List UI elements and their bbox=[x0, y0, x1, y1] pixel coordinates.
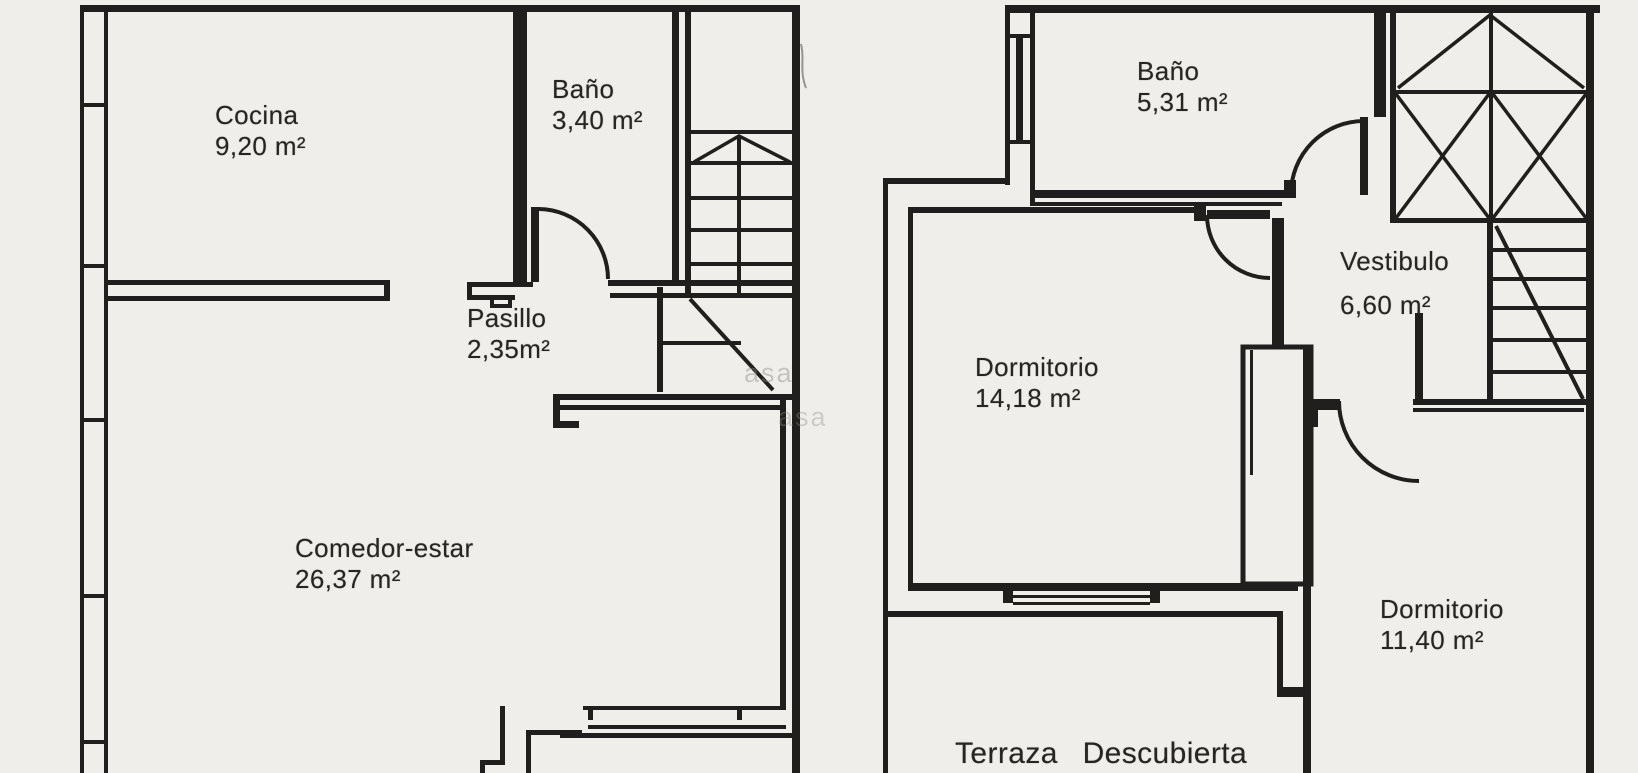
room-area: 2,35m² bbox=[467, 334, 550, 365]
upper-wardrobe-column bbox=[1243, 347, 1311, 584]
ground-passage-bottom-wall bbox=[553, 394, 800, 428]
ground-kitchen-partition bbox=[104, 280, 390, 301]
room-label-cocina: Cocina 9,20 m² bbox=[215, 100, 306, 161]
room-name: Baño bbox=[1137, 56, 1228, 87]
room-area: 3,40 m² bbox=[552, 105, 643, 136]
upper-bedroom14-window bbox=[1003, 591, 1160, 605]
room-label-dormitorio-14: Dormitorio 14,18 m² bbox=[975, 352, 1099, 413]
ground-outer-walls bbox=[80, 5, 800, 773]
room-area: 14,18 m² bbox=[975, 383, 1099, 414]
room-name: Cocina bbox=[215, 100, 306, 131]
upper-terrace-walls bbox=[885, 611, 1311, 697]
room-label-pasillo: Pasillo 2,35m² bbox=[467, 303, 550, 364]
room-area: 9,20 m² bbox=[215, 131, 306, 162]
room-area: 6,60 m² bbox=[1340, 290, 1449, 321]
room-label-terraza: Terraza Descubierta bbox=[955, 736, 1247, 771]
room-label-comedor: Comedor-estar 26,37 m² bbox=[295, 533, 474, 594]
room-name: Pasillo bbox=[467, 303, 550, 334]
watermark-fragment: asa bbox=[778, 402, 828, 433]
ground-bathroom-door bbox=[531, 207, 800, 298]
scan-artifact-squiggle bbox=[801, 44, 806, 88]
ground-left-wall-window-ticks bbox=[80, 103, 108, 744]
upper-bathroom-walls bbox=[1030, 180, 1296, 206]
upper-bedroom14-door bbox=[1194, 206, 1270, 278]
room-area: 26,37 m² bbox=[295, 564, 474, 595]
upper-dividing-wall bbox=[1303, 347, 1311, 773]
room-name: Comedor-estar bbox=[295, 533, 474, 564]
upper-bedroom11-door bbox=[1313, 313, 1423, 481]
room-label-bano-upper: Baño 5,31 m² bbox=[1137, 56, 1228, 117]
room-label-dormitorio-11: Dormitorio 11,40 m² bbox=[1380, 594, 1504, 655]
room-name: Dormitorio bbox=[1380, 594, 1504, 625]
upper-stairwell bbox=[1390, 5, 1592, 223]
room-name: Vestibulo bbox=[1340, 246, 1449, 277]
ground-floor-plan bbox=[80, 5, 806, 773]
room-name: Terraza Descubierta bbox=[955, 736, 1247, 771]
room-area: 11,40 m² bbox=[1380, 625, 1504, 656]
watermark-fragment: asa bbox=[744, 358, 794, 389]
room-name: Baño bbox=[552, 74, 643, 105]
ground-entry-steps bbox=[480, 706, 582, 773]
floor-plan-document: Cocina 9,20 m² Baño 3,40 m² Pasillo 2,35… bbox=[0, 0, 1638, 773]
ground-livingroom-right-wall bbox=[780, 400, 786, 710]
room-label-vestibulo: Vestibulo 6,60 m² bbox=[1340, 246, 1449, 320]
upper-bedroom14-walls bbox=[908, 207, 1298, 591]
ground-livingroom-window bbox=[560, 706, 795, 738]
upper-stair-flight bbox=[1487, 222, 1586, 402]
room-area: 5,31 m² bbox=[1137, 87, 1228, 118]
upper-vestibule-bottom-wall bbox=[1413, 399, 1590, 412]
room-name: Dormitorio bbox=[975, 352, 1099, 383]
ground-staircase bbox=[663, 130, 792, 390]
upper-entrance-door bbox=[1291, 13, 1386, 195]
room-label-bano-ground: Baño 3,40 m² bbox=[552, 74, 643, 135]
